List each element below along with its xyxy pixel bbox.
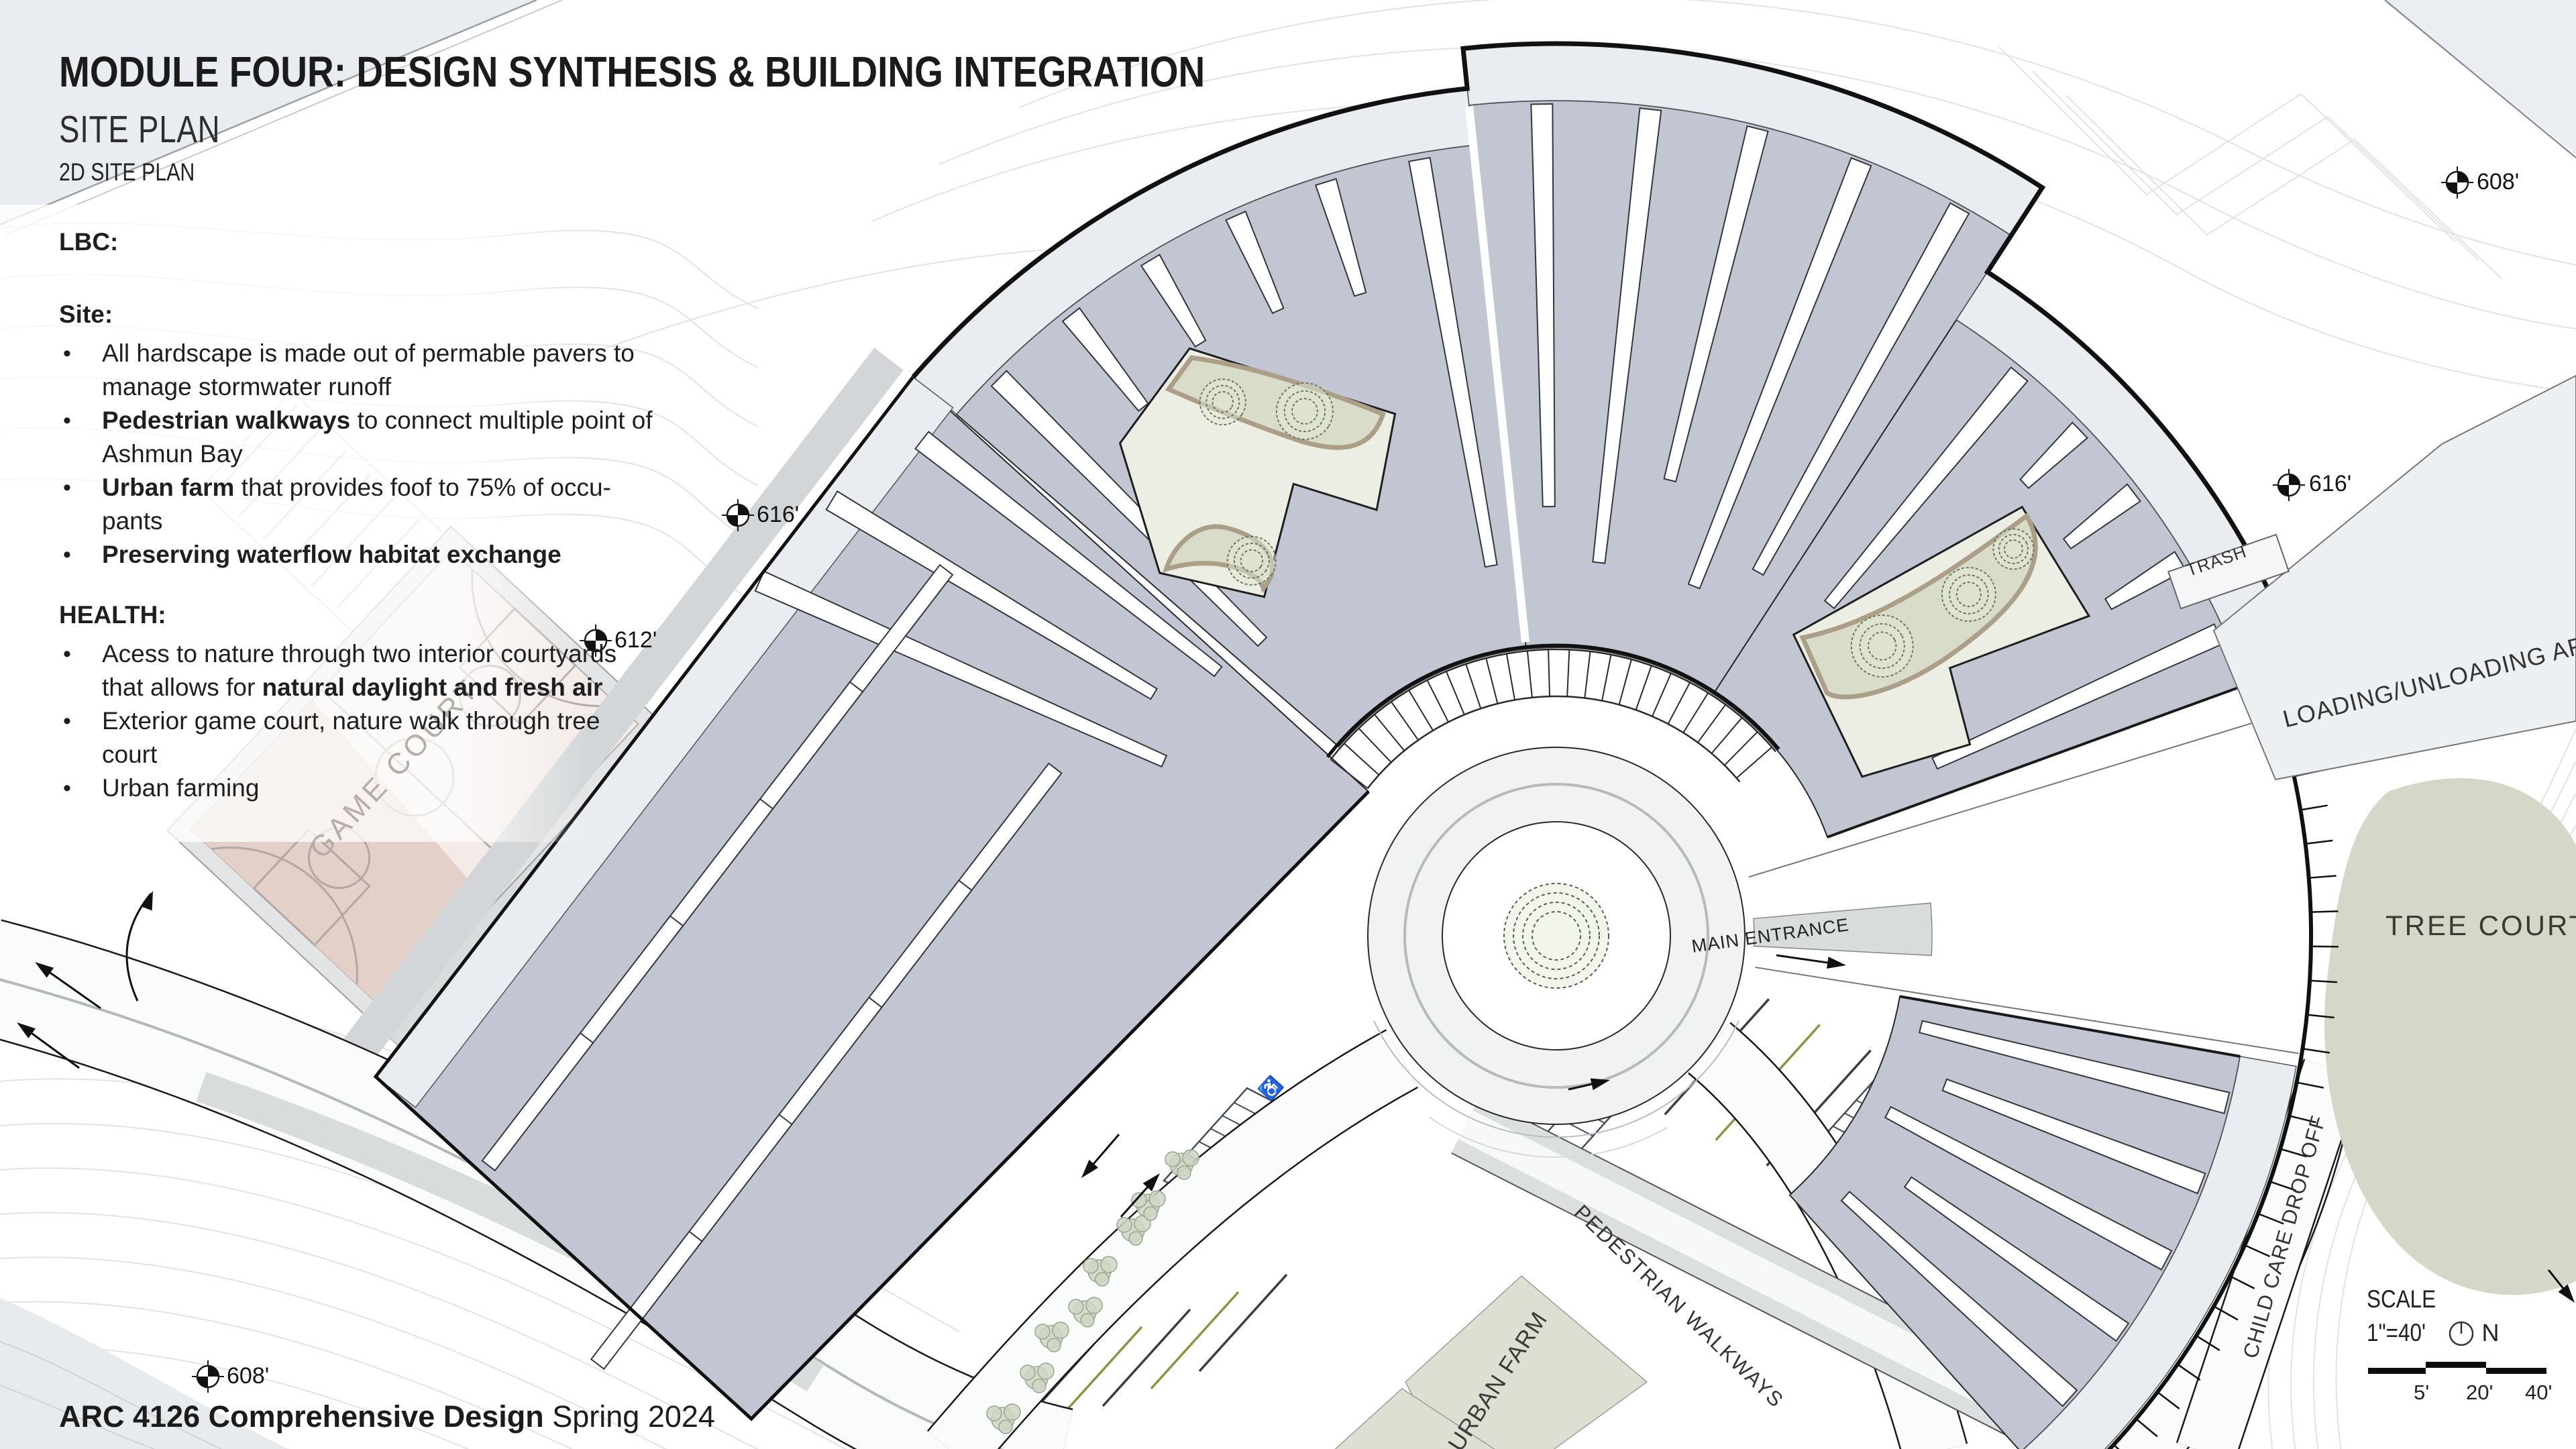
bullet-item: •Exterior game court, nature walk throug… xyxy=(59,704,653,771)
elevation-marker-label: 608' xyxy=(227,1363,269,1389)
health-heading: HEALTH: xyxy=(59,598,653,632)
site-bullet-list: •All hardscape is made out of permable p… xyxy=(59,337,653,572)
scale-title: SCALE xyxy=(2367,1285,2532,1313)
scale-tick: 40' xyxy=(2525,1381,2552,1405)
title-block: MODULE FOUR: DESIGN SYNTHESIS & BUILDING… xyxy=(59,47,1391,186)
bullet-item: •All hardscape is made out of permable p… xyxy=(59,337,653,404)
page-title: MODULE FOUR: DESIGN SYNTHESIS & BUILDING… xyxy=(59,47,1205,97)
bullet-item: •Acess to nature through two interior co… xyxy=(59,637,653,704)
main-building xyxy=(376,44,2339,1449)
elevation-marker-label: 608' xyxy=(2477,169,2519,195)
scale-block: SCALE 1"=40' N 5' 20' 40' xyxy=(2367,1285,2561,1405)
roundabout xyxy=(1368,747,1745,1157)
tree-court-label: TREE COURT xyxy=(2385,910,2576,942)
scale-tick: 20' xyxy=(2466,1381,2493,1405)
scale-tick: 5' xyxy=(2414,1381,2429,1405)
footer-credit: ARC 4126 Comprehensive Design Spring 202… xyxy=(59,1399,715,1434)
bullet-item: •Preserving waterflow habitat exchange xyxy=(59,538,653,572)
lbc-heading: LBC: xyxy=(59,225,653,259)
north-arrow-icon xyxy=(2446,1318,2477,1348)
term-label: Spring 2024 xyxy=(544,1399,715,1434)
course-code: ARC 4126 Comprehensive Design xyxy=(59,1399,544,1434)
bullet-item: •Urban farming xyxy=(59,771,653,805)
elevation-marker-label: 616' xyxy=(757,502,799,528)
bullet-item: •Pedestrian walkways to connect multiple… xyxy=(59,404,653,471)
north-label: N xyxy=(2482,1319,2500,1347)
elevation-marker-label: 616' xyxy=(2309,471,2351,497)
bullet-item: •Urban farm that provides foof to 75% of… xyxy=(59,471,653,538)
scale-ratio: 1"=40' xyxy=(2367,1319,2426,1347)
notes-column: LBC: Site: •All hardscape is made out of… xyxy=(59,225,653,805)
health-bullet-list: •Acess to nature through two interior co… xyxy=(59,637,653,805)
view-label: 2D SITE PLAN xyxy=(59,158,1152,186)
site-plan-board: ♿♿♿♿ MODULE FOUR: DESIGN SYNTHESIS & BUI… xyxy=(0,0,2576,1449)
scale-bar: 5' 20' 40' xyxy=(2367,1358,2561,1405)
site-heading: Site: xyxy=(59,298,653,331)
page-subtitle: SITE PLAN xyxy=(59,107,1125,152)
